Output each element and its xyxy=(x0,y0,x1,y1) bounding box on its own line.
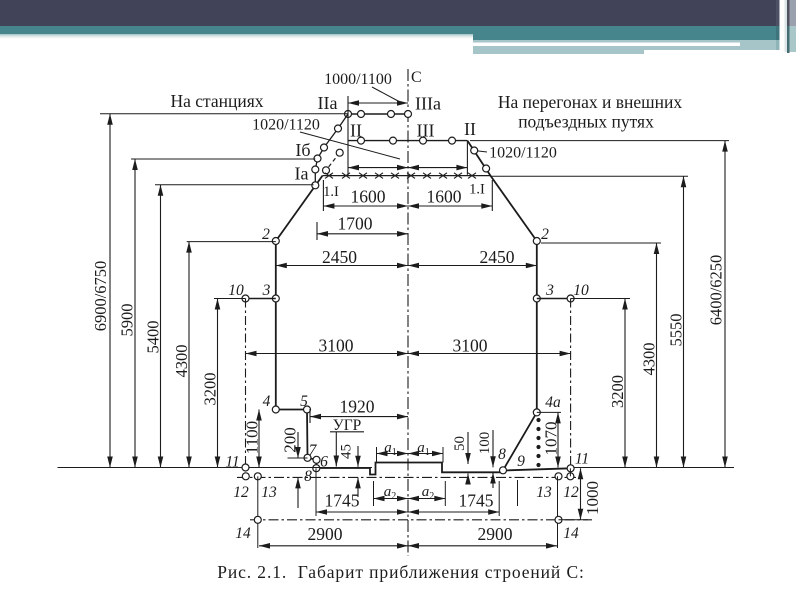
svg-text:2450: 2450 xyxy=(480,247,515,267)
svg-text:2900: 2900 xyxy=(478,524,513,544)
svg-text:50: 50 xyxy=(452,436,468,451)
svg-text:На перегонах и внешних: На перегонах и внешних xyxy=(498,92,683,112)
svg-text:1920: 1920 xyxy=(340,397,375,417)
svg-text:4300: 4300 xyxy=(640,343,659,376)
svg-text:2450: 2450 xyxy=(322,247,357,267)
svg-text:6400/6250: 6400/6250 xyxy=(707,255,726,326)
svg-text:200: 200 xyxy=(281,427,300,453)
svg-text:12: 12 xyxy=(563,484,579,501)
svg-text:a2: a2 xyxy=(422,484,435,502)
svg-text:II: II xyxy=(350,121,362,141)
svg-text:Iа: Iа xyxy=(295,164,309,184)
svg-text:5900: 5900 xyxy=(118,304,137,337)
svg-text:1020/1120: 1020/1120 xyxy=(489,145,557,162)
svg-text:3: 3 xyxy=(262,282,271,299)
svg-text:14: 14 xyxy=(235,525,251,542)
svg-text:10: 10 xyxy=(228,282,244,299)
svg-text:5400: 5400 xyxy=(144,321,163,354)
svg-text:8: 8 xyxy=(498,446,506,463)
svg-text:100: 100 xyxy=(477,432,493,455)
svg-text:1700: 1700 xyxy=(338,214,373,234)
svg-text:подъездных путях: подъездных путях xyxy=(518,112,654,132)
svg-text:5: 5 xyxy=(300,393,308,410)
svg-text:a1: a1 xyxy=(417,440,430,458)
svg-text:10: 10 xyxy=(573,282,589,299)
svg-text:9: 9 xyxy=(517,453,525,470)
svg-text:1745: 1745 xyxy=(325,491,360,511)
svg-text:12: 12 xyxy=(233,484,249,501)
svg-text:II: II xyxy=(464,119,476,139)
svg-text:14: 14 xyxy=(563,525,579,542)
svg-text:3100: 3100 xyxy=(319,336,354,356)
svg-text:4а: 4а xyxy=(545,394,561,411)
svg-text:2: 2 xyxy=(262,226,270,243)
svg-text:Рис. 2.1. Габарит приближения: Рис. 2.1. Габарит приближения строений С… xyxy=(217,562,585,582)
svg-text:13: 13 xyxy=(261,484,277,501)
svg-text:8: 8 xyxy=(304,468,312,485)
svg-text:7: 7 xyxy=(309,442,318,459)
svg-text:1745: 1745 xyxy=(459,491,494,511)
svg-text:3: 3 xyxy=(545,282,554,299)
svg-text:1.I: 1.I xyxy=(469,182,485,198)
svg-text:1070: 1070 xyxy=(542,422,561,456)
svg-text:a2: a2 xyxy=(384,484,397,502)
svg-text:6900/6750: 6900/6750 xyxy=(91,261,110,332)
svg-text:45: 45 xyxy=(339,444,355,459)
svg-text:4300: 4300 xyxy=(172,345,191,378)
svg-text:3200: 3200 xyxy=(608,375,627,408)
svg-text:IIIа: IIIа xyxy=(415,94,441,114)
svg-text:1000: 1000 xyxy=(583,481,602,515)
svg-text:3100: 3100 xyxy=(453,336,488,356)
svg-text:2900: 2900 xyxy=(308,524,343,544)
svg-text:5550: 5550 xyxy=(667,314,686,347)
svg-text:3200: 3200 xyxy=(201,373,220,406)
svg-text:1020/1120: 1020/1120 xyxy=(252,117,320,134)
svg-text:13: 13 xyxy=(536,484,552,501)
svg-text:11: 11 xyxy=(575,451,589,468)
svg-text:1100: 1100 xyxy=(243,421,262,454)
svg-text:III: III xyxy=(417,121,435,141)
svg-text:1000/1100: 1000/1100 xyxy=(324,71,392,88)
svg-text:С: С xyxy=(411,69,422,86)
svg-text:2: 2 xyxy=(541,226,549,243)
svg-text:1600: 1600 xyxy=(351,187,386,207)
svg-text:4: 4 xyxy=(263,393,271,410)
svg-text:1600: 1600 xyxy=(427,187,462,207)
svg-text:IIа: IIа xyxy=(318,93,338,113)
svg-text:1.I: 1.I xyxy=(323,184,339,200)
svg-text:a1: a1 xyxy=(384,440,397,458)
svg-text:На станциях: На станциях xyxy=(170,91,263,111)
svg-text:Iб: Iб xyxy=(295,140,310,160)
